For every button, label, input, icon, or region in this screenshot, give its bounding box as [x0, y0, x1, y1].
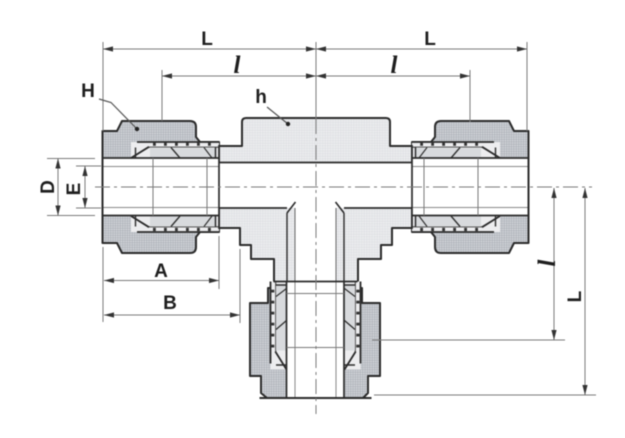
svg-text:l: l — [234, 52, 241, 79]
svg-text:h: h — [255, 87, 267, 108]
svg-text:l: l — [391, 52, 398, 79]
svg-text:D: D — [38, 180, 59, 194]
svg-text:E: E — [64, 183, 85, 196]
svg-text:A: A — [154, 261, 168, 282]
svg-text:l: l — [534, 259, 561, 266]
svg-text:H: H — [81, 81, 95, 102]
svg-text:L: L — [424, 29, 436, 50]
svg-text:L: L — [201, 29, 213, 50]
svg-text:L: L — [565, 290, 586, 302]
svg-text:B: B — [163, 293, 177, 314]
